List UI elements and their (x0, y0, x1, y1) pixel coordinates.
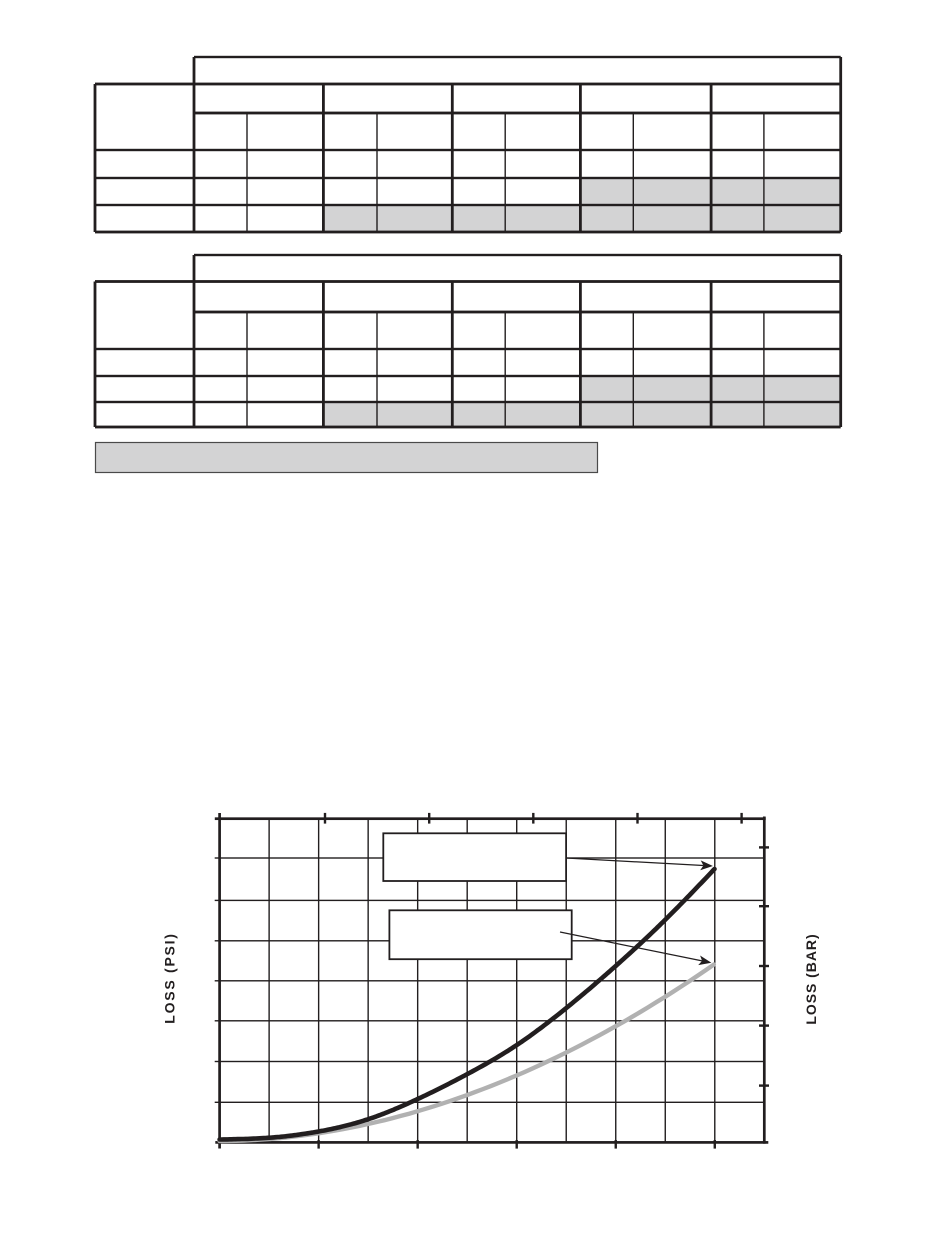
svg-text:LOSS (BAR): LOSS (BAR) (803, 933, 819, 1024)
svg-text:LOSS (PSI): LOSS (PSI) (162, 932, 178, 1023)
